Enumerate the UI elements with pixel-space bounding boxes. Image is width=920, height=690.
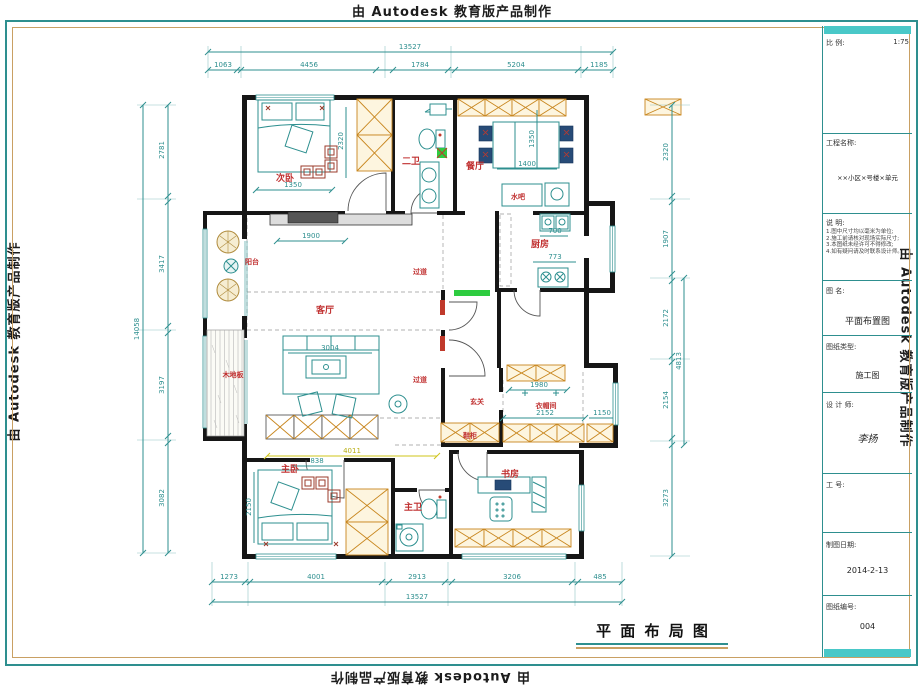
room-label-bedroom2: 次卧	[276, 172, 294, 184]
dim: 1907	[662, 230, 670, 248]
bed	[258, 100, 330, 172]
floor-plan-canvas: 13527 1063 4456 1784 5204 1185 1273 4001…	[0, 0, 920, 690]
titleblock-top-bar	[824, 26, 911, 34]
window	[610, 226, 615, 272]
drawing-name-label: 图 名:	[826, 286, 845, 296]
dim: 4001	[307, 573, 325, 581]
dim: 3082	[158, 489, 166, 507]
dim: 838	[310, 457, 323, 465]
bed	[258, 470, 338, 546]
dim: 3206	[503, 573, 521, 581]
dim-yellow: 4011	[343, 447, 361, 455]
dim: 773	[548, 253, 561, 261]
dim: 1980	[530, 381, 548, 389]
shower-icon	[425, 104, 452, 115]
master-wardrobe	[346, 489, 388, 555]
date-value: 2014-2-13	[823, 566, 912, 575]
window	[579, 485, 584, 531]
window	[203, 229, 207, 318]
floor-drain-icon	[437, 148, 447, 158]
titleblock-bottom-bar	[824, 649, 911, 657]
dim: 4456	[300, 61, 318, 69]
dim: 2152	[536, 409, 554, 417]
bedroom2-wardrobe	[357, 99, 392, 171]
toilet	[421, 496, 446, 520]
rattan-chair	[217, 279, 239, 301]
double-sink-vanity	[420, 162, 439, 208]
dim: 1150	[593, 409, 611, 417]
entry-door-arc	[449, 302, 477, 330]
drawing-caption: 平 面 布 局 图	[578, 620, 728, 641]
window	[203, 336, 207, 428]
dim: 3417	[158, 255, 166, 273]
toilet	[419, 129, 445, 149]
designer-label: 设 计 师:	[826, 400, 854, 410]
room-label-wood-floor: 木地板	[222, 370, 245, 379]
room-label-waterbar: 水吧	[511, 192, 525, 201]
door-frame-marker	[440, 336, 445, 351]
dim: 3273	[662, 489, 670, 507]
project-value: ××小区×号楼×单元	[823, 172, 912, 182]
scale-value: 1:75	[893, 38, 909, 46]
door-frame-marker	[440, 300, 445, 315]
room-label-cloakroom: 衣帽间	[536, 401, 557, 410]
room-label-study: 书房	[501, 468, 519, 480]
dim-top-total: 13527	[399, 43, 421, 51]
dim: 700	[548, 227, 561, 235]
notes-label: 说 明:	[826, 218, 845, 228]
designer-value: 李扬	[823, 430, 912, 445]
dim: 3197	[158, 376, 166, 394]
room-label-master-bath: 主卫	[404, 501, 422, 513]
dim: 2320	[662, 143, 670, 161]
wood-floor-area	[207, 330, 244, 436]
room-label-corridor-2: 过道	[413, 375, 427, 384]
note-line: 4.如有疑问请及时联系设计师。	[826, 249, 910, 256]
scale-label: 比 例:	[826, 38, 845, 48]
drawing-type-value: 施工图	[823, 370, 912, 381]
dim: 1350	[528, 130, 536, 148]
dim: 3004	[321, 344, 339, 352]
threshold-strip	[454, 290, 490, 296]
window	[462, 554, 566, 559]
dim-bottom-total: 13527	[406, 593, 428, 601]
dim: 2154	[662, 391, 670, 409]
bedroom2-door-arc	[348, 173, 386, 211]
rattan-chair	[217, 231, 239, 253]
window	[613, 383, 618, 425]
window	[256, 554, 336, 559]
title-block: 比 例: 1:75 工程名称: ××小区×号楼×单元 说 明: 1.图中尺寸均以…	[822, 26, 912, 657]
study-bookshelf	[455, 529, 571, 547]
dim: 1784	[411, 61, 429, 69]
outdoor-unit-platform	[645, 99, 681, 115]
room-label-kitchen: 厨房	[531, 238, 549, 250]
stove	[538, 268, 568, 287]
caption-underline-tan	[576, 647, 728, 649]
caption-underline-teal	[576, 643, 728, 645]
window	[256, 95, 334, 100]
room-label-master-bed: 主卧	[281, 463, 299, 475]
dim: 485	[593, 573, 606, 581]
room-label-foyer: 玄关	[470, 397, 484, 406]
dim: 5204	[507, 61, 525, 69]
dim: 2150	[245, 498, 253, 516]
kitchen-door-arc	[514, 290, 540, 316]
entry-door-arc	[449, 340, 485, 376]
washing-machine	[396, 524, 423, 551]
dim: 1900	[302, 232, 320, 240]
room-label-corridor-1: 过道	[413, 267, 427, 276]
sheet-no-value: 004	[823, 622, 912, 631]
dim-left-total: 14058	[133, 318, 141, 340]
room-label-bath2: 二卫	[402, 156, 420, 167]
project-label: 工程名称:	[826, 138, 856, 148]
room-label-balcony: 阳台	[245, 257, 259, 266]
dim: 2913	[408, 573, 426, 581]
tv-cabinet	[270, 212, 412, 225]
sofa-set	[283, 336, 407, 418]
kitchen-counter-dashed	[500, 214, 511, 286]
dining-top-cabinet	[458, 99, 566, 116]
room-label-shoe-cabinet: 鞋柜	[463, 431, 477, 440]
desk-chair	[490, 497, 512, 521]
drawing-name-value: 平面布置图	[823, 314, 912, 327]
sheet-no-label: 图纸编号:	[826, 602, 856, 612]
room-label-living: 客厅	[315, 304, 334, 316]
dim: 1063	[214, 61, 232, 69]
job-no-label: 工 号:	[826, 480, 845, 490]
dim: 2172	[662, 309, 670, 327]
dim: 2781	[158, 141, 166, 159]
dim: 1185	[590, 61, 608, 69]
room-label-dining: 餐厅	[465, 160, 484, 172]
dim: 4813	[675, 352, 683, 370]
balcony-round-table	[224, 259, 238, 273]
cloakroom-cabinets	[503, 365, 613, 442]
dim: 1400	[518, 160, 536, 168]
date-label: 制图日期:	[826, 540, 856, 550]
dim: 2320	[337, 132, 345, 150]
dimension-chains: 13527 1063 4456 1784 5204 1185 1273 4001…	[133, 43, 690, 606]
drawing-type-label: 图纸类型:	[826, 342, 856, 352]
dim: 1273	[220, 573, 238, 581]
living-storage-row	[266, 415, 378, 439]
